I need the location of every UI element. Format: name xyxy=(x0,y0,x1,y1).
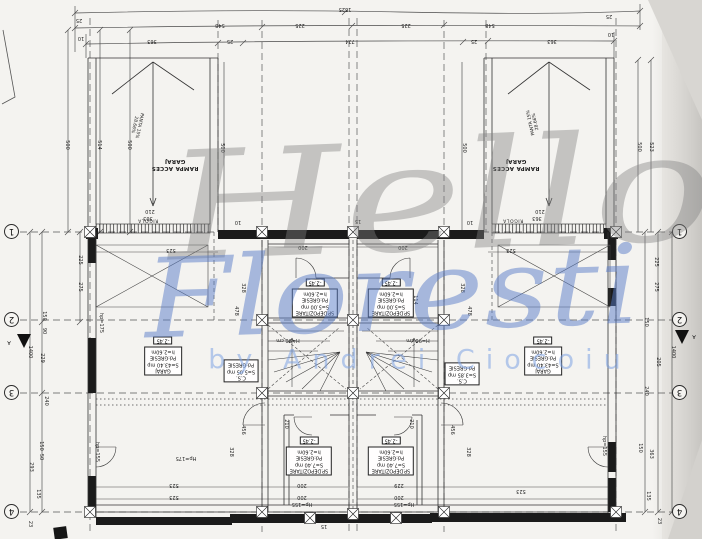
dimension-label: 500 xyxy=(461,143,467,153)
rigola-label-right: RIGOLA xyxy=(503,218,524,223)
room-label-line: SP.DEPOZITARE xyxy=(290,467,329,473)
dimension-label: 328 xyxy=(465,447,471,457)
dimension-label: 15 xyxy=(321,523,327,529)
ramp-label-line: GARAJ xyxy=(492,157,539,164)
room-label-storage-upper-left: SP.DEPOZITARES=5.00 mpPd:GRESIEh=2.60m-2… xyxy=(292,279,338,318)
dimension-label: 523 xyxy=(506,247,516,253)
axis-number: 4 xyxy=(677,507,682,517)
dimension-label: 25 xyxy=(227,38,233,44)
ramp-label-line: RAMPA ACCES xyxy=(492,164,539,171)
dimension-label: 500 xyxy=(219,143,225,153)
dimension-label: 1400 xyxy=(670,346,676,359)
axis-number: 4 xyxy=(9,507,14,517)
dimension-label: Hp=155 xyxy=(292,501,313,507)
room-label-line: S=3.85 mp xyxy=(448,371,476,377)
dimension-label: 363 xyxy=(532,215,542,221)
dimension-label: 10 xyxy=(235,219,241,225)
room-label-line: C.S. xyxy=(448,377,476,383)
dimension-label: 225 xyxy=(401,22,411,28)
dimension-label: 229 xyxy=(394,482,404,488)
dimension-label: H=90 cm xyxy=(406,337,430,343)
room-label-line: h=2.60m xyxy=(147,349,178,355)
room-label-storage-lower-right: SP.DEPOZITARES=7.40 mpPd:GRESIEh=2.60m-2… xyxy=(368,437,414,476)
dimension-label: 200 xyxy=(297,482,307,488)
dimension-label: 200 xyxy=(297,494,307,500)
dimension-label: 478 xyxy=(233,306,239,316)
dimension-label: 10 xyxy=(467,219,473,225)
room-label-line: SP.DEPOZITARE xyxy=(372,467,411,473)
room-label-line: Pd:GRESIE xyxy=(227,362,255,368)
dimension-label: 229 xyxy=(39,353,45,363)
room-label-box: SP.DEPOZITARES=5.00 mpPd:GRESIEh=2.60m xyxy=(292,289,338,318)
axis-number: 2 xyxy=(9,315,14,325)
axis-bubble-right-1: 1 xyxy=(672,224,687,239)
level-marker: -2.45 xyxy=(382,279,401,288)
axis-number: 3 xyxy=(677,388,682,398)
dimension-label: 25 xyxy=(76,17,82,23)
room-label-box: GARAJS=43.40 mpPd:GRESIEh=2.60m xyxy=(144,347,182,376)
dimension-label: 23 xyxy=(656,518,662,524)
room-label-line: S=43.40 mp xyxy=(527,361,558,367)
dimension-label: 10 xyxy=(465,513,471,519)
room-label-line: Pd:GRESIE xyxy=(147,355,178,361)
dimension-label: 225 xyxy=(295,22,305,28)
dimension-label: 500 xyxy=(126,140,132,150)
dimension-label: 90 xyxy=(41,328,47,334)
room-label-line: S=7.40 mp xyxy=(372,461,411,467)
room-label-line: Pd:GRESIE xyxy=(448,365,476,371)
ramp-left-label: RAMPA ACCES GARAJ xyxy=(151,157,198,171)
axis-bubble-left-3: 3 xyxy=(4,385,19,400)
dimension-label: 210 xyxy=(145,208,155,214)
dimension-label: 548 xyxy=(485,22,495,28)
room-label-garage-right: GARAJS=43.40 mpPd:GRESIEh=2.60m-2.45 xyxy=(524,337,562,376)
axis-bubble-right-3: 3 xyxy=(672,385,687,400)
dimension-label: 275 xyxy=(653,282,659,292)
dimension-label: 774 xyxy=(345,38,355,44)
level-marker: -2.45 xyxy=(382,437,401,446)
room-label-box: C.S.S=3.85 mpPd:GRESIE xyxy=(444,363,479,386)
dimension-label: A xyxy=(7,339,10,345)
scan-artifact-blob xyxy=(53,526,68,539)
axis-number: 1 xyxy=(677,227,682,237)
dimension-label: 135 xyxy=(35,489,41,499)
dimension-label: 363 xyxy=(143,215,153,221)
dimension-label: 23 xyxy=(27,521,33,527)
room-label-line: SP.DEPOZITARE xyxy=(296,309,335,315)
dimension-label: 514 xyxy=(96,140,102,150)
dimension-label: 210 xyxy=(408,419,414,429)
dimension-label: 523 xyxy=(169,482,179,488)
room-label-box: SP.DEPOZITARES=5.00 mpPd:GRESIEh=2.60m xyxy=(368,289,414,318)
room-label-line: GARAJ xyxy=(147,367,178,373)
room-label-line: S=7.40 mp xyxy=(290,461,329,467)
dimension-label: 150 xyxy=(637,443,643,453)
axis-bubble-right-2: 2 xyxy=(672,312,687,327)
dimension-label: 275 xyxy=(77,282,83,292)
dimension-label: 240 xyxy=(43,396,49,406)
dimension-label: 200 xyxy=(298,244,308,250)
dimension-label: 205 xyxy=(655,357,661,367)
dimension-label: 15 xyxy=(355,218,361,224)
dimension-label: 456 xyxy=(240,425,246,435)
room-label-box: C.S.S=5.05 mpPd:GRESIE xyxy=(223,360,258,383)
dimension-label: 225 xyxy=(653,257,659,267)
dimension-label: A xyxy=(692,333,695,339)
level-marker: -2.45 xyxy=(154,337,173,346)
dimension-label: 1400 xyxy=(27,346,33,359)
axis-bubble-left-4: 4 xyxy=(4,504,19,519)
dimension-label: 293 xyxy=(28,462,34,472)
dimension-label: 240 xyxy=(643,386,649,396)
dimension-label: 210 xyxy=(535,208,545,214)
rigola-channel-right xyxy=(492,224,606,233)
dimension-label: 456 xyxy=(449,425,455,435)
plan-linework xyxy=(0,0,702,539)
dimension-label: 135 xyxy=(645,491,651,501)
room-label-stair-left: C.S.S=5.05 mpPd:GRESIE xyxy=(223,360,258,383)
dimension-label: 363 xyxy=(648,449,654,459)
room-label-line: SP.DEPOZITARE xyxy=(372,309,411,315)
room-label-line: S=5.05 mp xyxy=(227,368,255,374)
dimension-label: 10 xyxy=(78,35,84,41)
dimension-label: 500 xyxy=(64,140,70,150)
dimension-label: H=90 cm xyxy=(276,337,300,343)
ramp-right-label: RAMPA ACCES GARAJ xyxy=(492,157,539,171)
dimension-label: 210 xyxy=(283,419,289,429)
room-label-line: S=5.00 mp xyxy=(296,303,335,309)
dimension-label: 523 xyxy=(169,494,179,500)
room-label-box: SP.DEPOZITARES=7.40 mpPd:GRESIEh=2.60m xyxy=(286,447,332,476)
dimension-label: 478 xyxy=(466,306,472,316)
dimension-label: 10 xyxy=(608,31,614,37)
axis-bubble-left-2: 2 xyxy=(4,312,19,327)
dimension-label: 328 xyxy=(240,283,246,293)
dimension-label: 523 xyxy=(516,488,526,494)
dimension-label: hp=155 xyxy=(94,442,100,462)
room-label-storage-lower-left: SP.DEPOZITARES=7.40 mpPd:GRESIEh=2.60m-2… xyxy=(286,437,332,476)
axis-bubble-right-4: 4 xyxy=(672,504,687,519)
room-label-line: S=43.40 mp xyxy=(147,361,178,367)
room-label-line: h=2.60m xyxy=(527,349,558,355)
axis-number: 1 xyxy=(9,227,14,237)
level-marker: -2.45 xyxy=(306,279,325,288)
dimension-label: 328 xyxy=(459,283,465,293)
dimension-label: Hp=155 xyxy=(394,501,415,507)
axis-number: 2 xyxy=(677,315,682,325)
ramp-label-line: RAMPA ACCES xyxy=(151,164,198,171)
rigola-channel-left xyxy=(96,224,210,233)
dimension-label: 363 xyxy=(547,38,557,44)
dimension-label: 150 xyxy=(38,441,44,451)
axis-number: 3 xyxy=(9,388,14,398)
room-label-box: GARAJS=43.40 mpPd:GRESIEh=2.60m xyxy=(524,347,562,376)
floor-plan-scan: RAMPA ACCES GARAJ RAMPA ACCES GARAJ PANT… xyxy=(0,0,702,539)
dimension-label: 200 xyxy=(398,244,408,250)
dimension-label: 548 xyxy=(215,22,225,28)
dimension-label: 25 xyxy=(471,38,477,44)
room-label-storage-upper-right: SP.DEPOZITARES=5.00 mpPd:GRESIEh=2.60m-2… xyxy=(368,279,414,318)
dimension-label: 50 xyxy=(38,454,44,460)
dimension-label: 1525 xyxy=(339,6,352,12)
dimension-label: 150 xyxy=(643,317,649,327)
ramp-label-line: GARAJ xyxy=(151,157,198,164)
axis-bubble-left-1: 1 xyxy=(4,224,19,239)
dimension-label: 10 xyxy=(233,513,239,519)
dimension-label: 25 xyxy=(606,13,612,19)
dimension-label: hp=155 xyxy=(601,436,607,456)
room-label-line: GARAJ xyxy=(527,367,558,373)
room-label-box: SP.DEPOZITARES=7.40 mpPd:GRESIEh=2.60m xyxy=(368,447,414,476)
dimension-label: Hp=175 xyxy=(176,455,197,461)
dimension-label: 150 xyxy=(41,311,47,321)
dimension-label: 500 xyxy=(636,142,642,152)
dimension-label: 328 xyxy=(228,447,234,457)
room-label-line: Pd:GRESIE xyxy=(527,355,558,361)
room-label-stair-right: C.S.S=3.85 mpPd:GRESIE xyxy=(444,363,479,386)
room-label-line: S=5.00 mp xyxy=(372,303,411,309)
level-marker: -2.45 xyxy=(534,337,553,346)
dimension-label: 225 xyxy=(77,255,83,265)
dimension-label: 523 xyxy=(166,247,176,253)
dimension-label: 523 xyxy=(648,142,654,152)
dimension-label: hp=175 xyxy=(98,313,104,333)
room-label-garage-left: GARAJS=43.40 mpPd:GRESIEh=2.60m-2.45 xyxy=(144,337,182,376)
room-label-line: C.S. xyxy=(227,374,255,380)
dimension-label: 114 xyxy=(412,295,418,305)
level-marker: -2.45 xyxy=(300,437,319,446)
dimension-label: 200 xyxy=(394,494,404,500)
dimension-label: 363 xyxy=(147,38,157,44)
